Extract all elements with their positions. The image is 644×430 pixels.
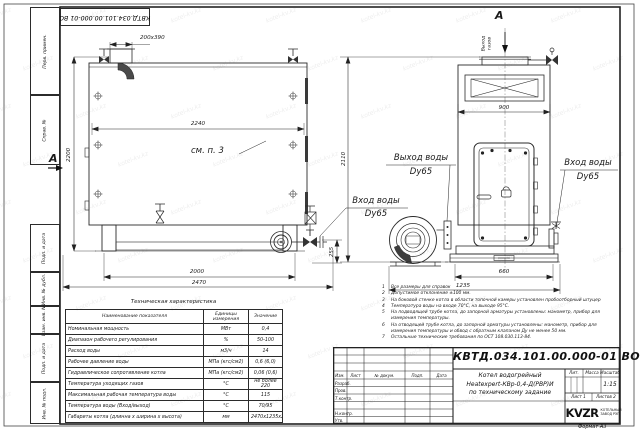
side-inlet-label: Вход воды	[556, 158, 620, 168]
table-row: Температура уходящих газов°Сне более 220	[66, 379, 283, 390]
table-header-row: Наименование показателя Единицы измерени…	[66, 310, 283, 324]
format-label: Формат А3	[578, 424, 606, 430]
row-value: 115	[249, 390, 283, 401]
col-header-unit: Единицы измерения	[204, 310, 249, 324]
title-name: Котел водогрейный Heatexpert-КВр-0,4-Д(Р…	[455, 372, 565, 398]
row-value: 50-100	[249, 335, 283, 346]
dim-2240: 2240	[184, 121, 212, 127]
table-row: Рабочее давление водыМПа (кгс/см2)0,6 (6…	[66, 357, 283, 368]
note-item: 5На подводящей трубе котла, до запорной …	[380, 310, 613, 323]
title-name-line3: по техническому задание	[455, 389, 565, 398]
front-inlet-label: Вход воды	[344, 196, 408, 206]
kvzr-logo-subtext: КОТЕЛЬНЫЙ ЗАВОД РЭП	[601, 409, 622, 416]
sheet-label: Лист	[571, 394, 582, 399]
row-value: 0,06 (0,6)	[249, 368, 283, 379]
section-a-label: А	[49, 152, 58, 165]
row-name: Расход воды	[66, 346, 204, 357]
notes-list: 1Все размеры для справок 2Допустимое отк…	[380, 285, 613, 341]
engineering-drawing-sheet: { "watermark": {"text": "kotel-kv.kz"}, …	[0, 0, 644, 430]
row-value: 70/95	[249, 401, 283, 412]
dim-900: 900	[492, 105, 516, 111]
title-name-line1: Котел водогрейный	[455, 372, 565, 381]
tech-characteristics-table: Техническая характеристика Наименование …	[65, 299, 282, 423]
dim-chimney: 200х390	[140, 35, 165, 41]
row-value: не более 220	[249, 379, 283, 390]
sheet-cell: Лист 1	[566, 394, 591, 399]
row-name: Габариты котла (длинна х ширина х высота…	[66, 412, 204, 423]
dim-255: 255	[329, 241, 335, 257]
note-text: Остальные технические требования по ОСТ …	[391, 335, 613, 341]
title-name-line2: Heatexpert-КВр-0,4-Д(РВР)И	[455, 381, 565, 390]
row-name: Температура воды (Вход/выход)	[66, 401, 204, 412]
kvzr-logo-text: KVZR	[566, 406, 599, 420]
note-item: 7Остальные технические требования по ОСТ…	[380, 335, 613, 341]
note-text: На отводящей трубе котла, до запорной ар…	[391, 323, 613, 336]
row-unit: МПа (кгс/см2)	[204, 368, 249, 379]
sheet-number: 1	[583, 394, 586, 399]
col-header-value: Значение	[249, 310, 283, 324]
logo-sub2: ЗАВОД РЭП	[601, 413, 622, 417]
title-designation: КВТД.034.101.00.000-01 ВО	[453, 350, 620, 363]
table-row: Температура воды (Вход/выход)°С70/95	[66, 401, 283, 412]
row-name: Номинальная мощность	[66, 324, 204, 335]
tech-table-title: Техническая характеристика	[65, 299, 282, 309]
side-view	[390, 28, 562, 270]
table-row: Габариты котла (длинна х ширина х высота…	[66, 412, 283, 423]
row-value: 2470х1235х2200	[249, 412, 283, 423]
row-name: Диапазон рабочего регулирования	[66, 335, 204, 346]
col-izm: Изм.	[333, 373, 347, 378]
row-utv: Утв.	[335, 418, 343, 423]
table-row: Номинальная мощностьМВт0,4	[66, 324, 283, 335]
table-row: Гидравлическое сопротивление котлаМПа (к…	[66, 368, 283, 379]
row-value: 14	[249, 346, 283, 357]
scale-label: Масштаб	[600, 370, 620, 375]
note-number: 6	[380, 323, 391, 336]
row-unit: °С	[204, 401, 249, 412]
gas-outlet-line2: газов	[487, 31, 493, 57]
manufacturer-logo: KVZR КОТЕЛЬНЫЙ ЗАВОД РЭП	[566, 402, 619, 423]
mass-label: Масса	[583, 370, 601, 375]
side-outlet-label: Выход воды	[384, 153, 458, 163]
dim-2470: 2470	[184, 280, 214, 286]
row-name: Гидравлическое сопротивление котла	[66, 368, 204, 379]
row-name: Рабочее давление воды	[66, 357, 204, 368]
row-tkontr: Т.контр.	[335, 396, 352, 401]
dim-2110: 2110	[341, 144, 347, 166]
row-value: 0,6 (6,0)	[249, 357, 283, 368]
dim-2200: 2200	[66, 140, 72, 162]
row-unit: %	[204, 335, 249, 346]
gas-outlet-label: Выход газов	[482, 31, 493, 57]
front-inlet-dn: Dy65	[344, 209, 408, 219]
col-podp: Подп.	[405, 373, 430, 378]
lit-label: Лит.	[565, 370, 583, 375]
row-name: Температура уходящих газов	[66, 379, 204, 390]
side-inlet-dn: Dy65	[556, 172, 620, 182]
row-unit: °С	[204, 379, 249, 390]
sheets-cell: Листов 2	[592, 394, 620, 399]
row-unit: мм	[204, 412, 249, 423]
row-nkontr: Н.контр.	[335, 411, 353, 416]
table-row: Расход водым3/ч14	[66, 346, 283, 357]
note-text: На подводящей трубе котла, до запорной а…	[391, 310, 613, 323]
col-doc: № докум.	[364, 373, 405, 378]
row-unit: м3/ч	[204, 346, 249, 357]
row-unit: МПа (кгс/см2)	[204, 357, 249, 368]
view-a-label: А	[495, 9, 504, 22]
col-list: Лист	[347, 373, 364, 378]
col-header-name: Наименование показателя	[66, 310, 204, 324]
scale-value: 1:15	[600, 381, 620, 388]
sheets-label: Листов	[596, 394, 612, 399]
side-outlet-dn: Dy65	[384, 167, 458, 177]
see-note-ref: см. п. 3	[191, 146, 224, 156]
table-row: Максимальная рабочая температура воды°С1…	[66, 390, 283, 401]
dim-660: 660	[490, 269, 518, 275]
note-item: 6На отводящей трубе котла, до запорной а…	[380, 323, 613, 336]
row-value: 0,4	[249, 324, 283, 335]
sheets-number: 2	[613, 394, 616, 399]
note-number: 5	[380, 310, 391, 323]
table-row: Диапазон рабочего регулирования%50-100	[66, 335, 283, 346]
row-unit: °С	[204, 390, 249, 401]
row-unit: МВт	[204, 324, 249, 335]
row-prov: Пров.	[335, 388, 347, 393]
row-name: Максимальная рабочая температура воды	[66, 390, 204, 401]
row-razrab: Разраб.	[335, 381, 351, 386]
dim-2000: 2000	[182, 269, 212, 275]
note-number: 7	[380, 335, 391, 341]
col-data: Дата	[430, 373, 453, 378]
